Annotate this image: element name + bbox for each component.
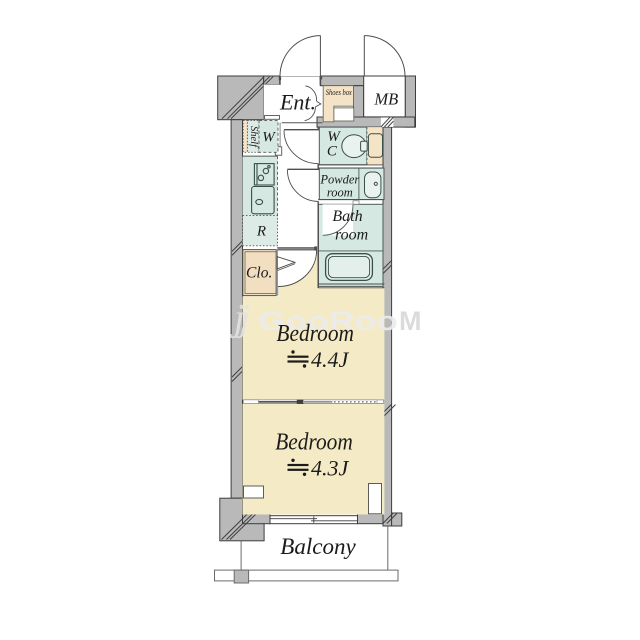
- svg-text:C: C: [327, 144, 338, 160]
- svg-text:W: W: [262, 130, 276, 146]
- svg-text:Bedroom: Bedroom: [276, 321, 354, 347]
- svg-text:room: room: [327, 185, 353, 199]
- svg-text:4.4J: 4.4J: [311, 347, 350, 372]
- svg-text:R: R: [256, 224, 266, 240]
- svg-text:W: W: [327, 129, 341, 145]
- svg-text:Powder: Powder: [319, 172, 359, 186]
- svg-text:Bedroom: Bedroom: [275, 429, 353, 455]
- svg-text:4.3J: 4.3J: [311, 455, 350, 480]
- svg-text:Shelf: Shelf: [248, 126, 259, 149]
- svg-text:Shoes box: Shoes box: [326, 88, 352, 97]
- svg-text:room: room: [335, 226, 368, 243]
- svg-text:MB: MB: [373, 89, 398, 108]
- svg-text:Ent.: Ent.: [279, 89, 316, 114]
- svg-text:Balcony: Balcony: [280, 534, 356, 559]
- svg-text:M: M: [399, 306, 422, 336]
- svg-text:Bath: Bath: [332, 208, 362, 225]
- svg-text:Clo.: Clo.: [246, 265, 272, 282]
